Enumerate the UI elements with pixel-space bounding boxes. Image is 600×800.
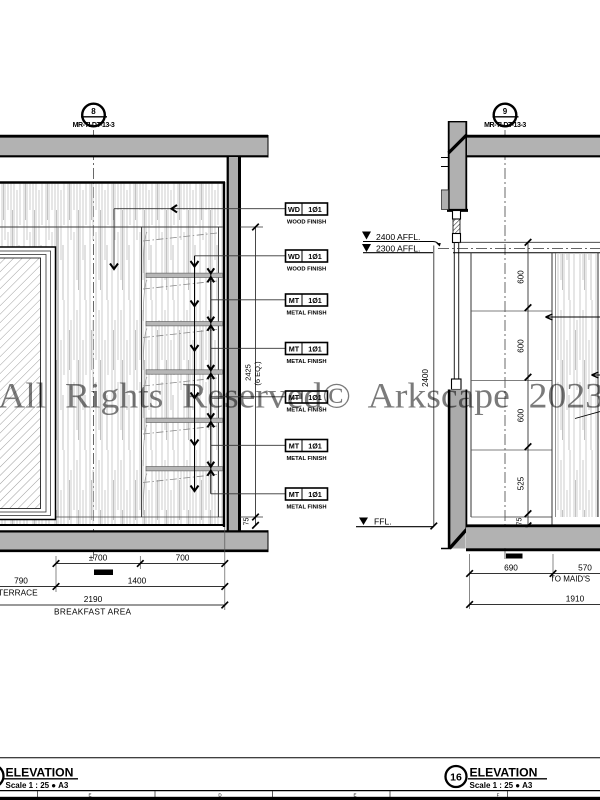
svg-text:1Ø1: 1Ø1 [308,490,322,499]
svg-text:9: 9 [503,107,508,116]
svg-text:METAL FINISH: METAL FINISH [286,310,326,316]
svg-text:MT: MT [289,296,300,305]
svg-text:75: 75 [244,518,251,526]
svg-text:600: 600 [517,339,526,353]
svg-text:TERRACE: TERRACE [0,588,38,598]
svg-text:1Ø1: 1Ø1 [308,252,322,261]
svg-text:Scale 1 : 25 ● A3: Scale 1 : 25 ● A3 [470,781,533,790]
svg-text:790: 790 [14,576,28,586]
svg-text:MT: MT [289,345,300,354]
svg-text:METAL FINISH: METAL FINISH [286,359,326,365]
svg-text:16: 16 [450,771,462,783]
svg-text:WOOD FINISH: WOOD FINISH [287,219,326,225]
svg-text:2300 AFFL.: 2300 AFFL. [376,244,420,254]
svg-text:570: 570 [578,563,592,573]
svg-text:D: D [218,793,222,798]
svg-text:1Ø1: 1Ø1 [308,442,322,451]
svg-text:WOOD FINISH: WOOD FINISH [287,266,326,272]
svg-text:MR-TI-DT-13-3: MR-TI-DT-13-3 [484,122,526,129]
svg-text:WD: WD [288,205,300,214]
svg-text:75: 75 [517,518,524,526]
svg-text:MT: MT [289,442,300,451]
svg-text:MT: MT [289,490,300,499]
svg-text:ELEVATION: ELEVATION [6,766,74,780]
svg-text:525: 525 [517,476,526,490]
svg-text:1400: 1400 [128,576,147,586]
svg-text:METAL FINISH: METAL FINISH [286,456,326,462]
svg-text:700: 700 [176,553,190,563]
svg-text:F: F [497,793,500,798]
svg-text:All Rights Reserved© Arkscape: All Rights Reserved© Arkscape 2023 [0,376,600,416]
svg-text:E: E [88,793,91,798]
svg-text:TO MAID'S: TO MAID'S [550,574,590,583]
svg-text:E: E [353,793,356,798]
svg-text:2400 AFFL.: 2400 AFFL. [376,232,420,242]
svg-text:8: 8 [91,107,96,116]
svg-text:ELEVATION: ELEVATION [470,766,538,780]
svg-text:±700: ±700 [89,553,108,563]
svg-text:1Ø1: 1Ø1 [308,296,322,305]
svg-text:MR-TI-DT-13-3: MR-TI-DT-13-3 [73,122,115,129]
svg-text:690: 690 [504,563,518,573]
svg-text:1Ø1: 1Ø1 [308,205,322,214]
svg-text:WD: WD [288,252,300,261]
svg-text:1Ø1: 1Ø1 [308,345,322,354]
svg-text:FFL.: FFL. [374,517,392,527]
svg-text:METAL FINISH: METAL FINISH [286,504,326,510]
svg-text:Scale 1 : 25 ● A3: Scale 1 : 25 ● A3 [6,781,69,790]
svg-text:BREAKFAST AREA: BREAKFAST AREA [54,607,132,617]
svg-text:2190: 2190 [84,594,103,604]
svg-text:600: 600 [517,270,526,284]
svg-text:1910: 1910 [566,594,585,604]
